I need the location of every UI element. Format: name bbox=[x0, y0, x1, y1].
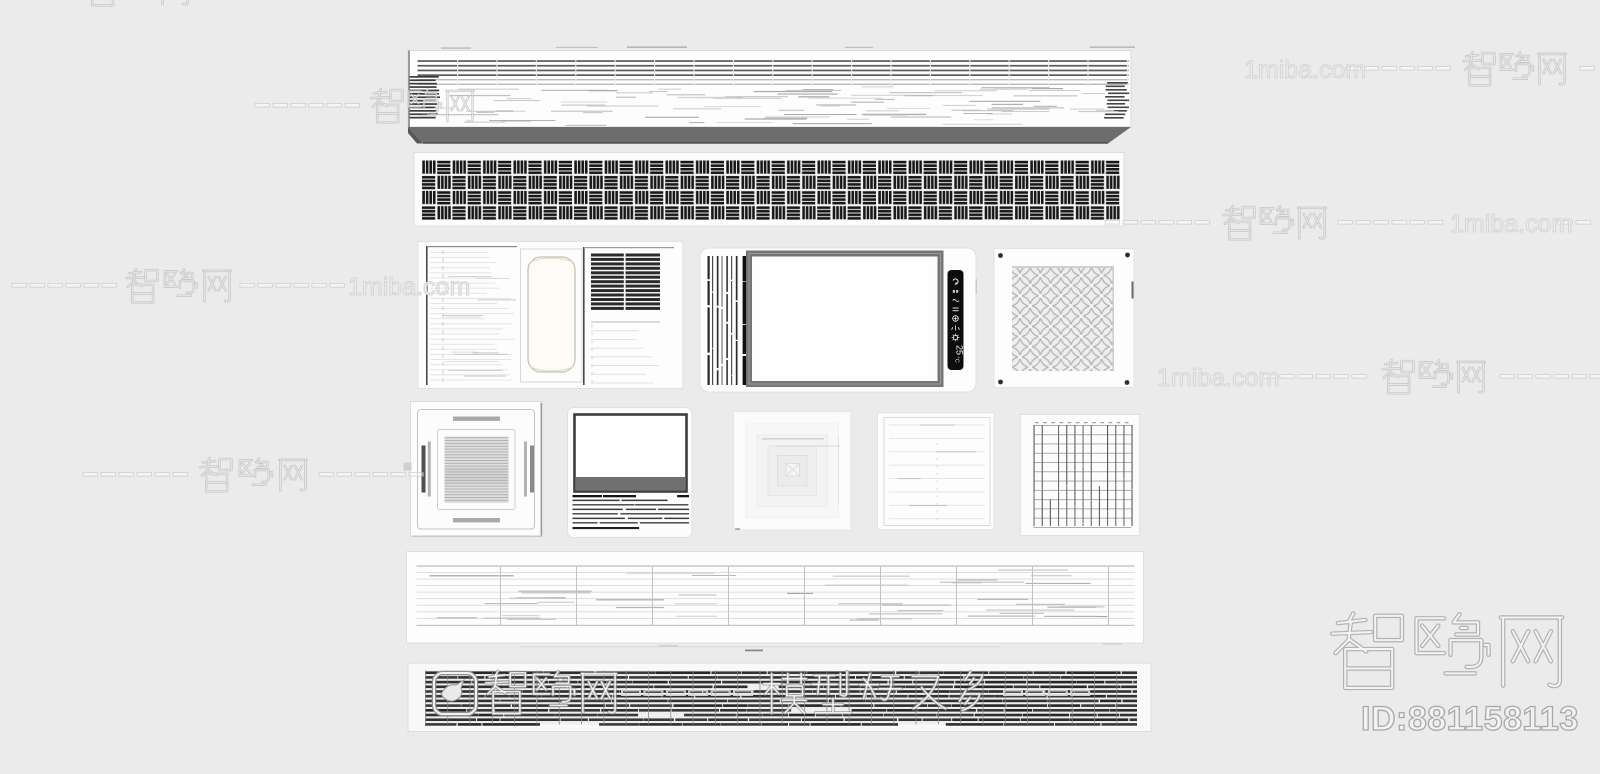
svg-text:°C: °C bbox=[954, 357, 960, 363]
svg-text:25: 25 bbox=[955, 345, 965, 355]
